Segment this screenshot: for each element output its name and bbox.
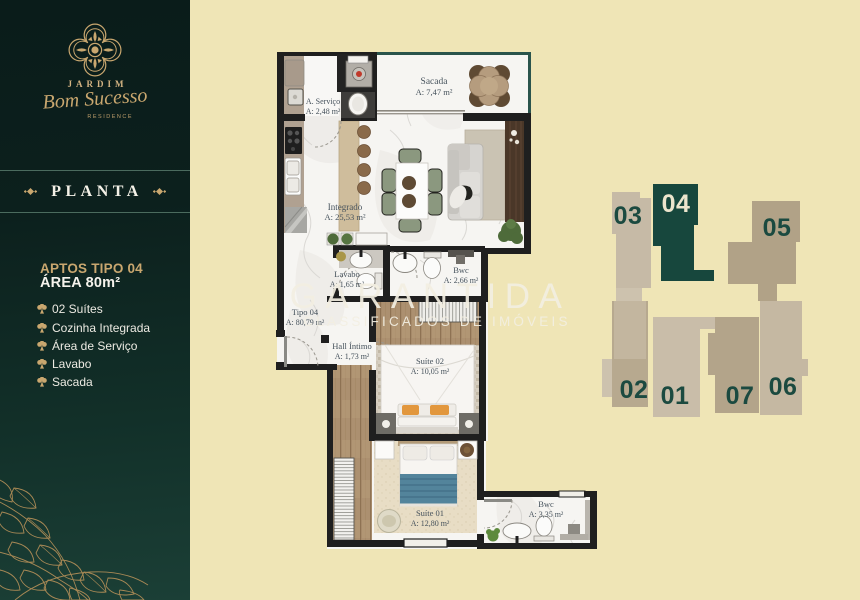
svg-text:Bwc: Bwc — [453, 265, 469, 275]
svg-text:A: 25,53 m²: A: 25,53 m² — [324, 212, 365, 222]
svg-text:A: 2,48 m²: A: 2,48 m² — [306, 107, 341, 116]
svg-text:Bwc: Bwc — [538, 499, 554, 509]
svg-text:06: 06 — [769, 373, 798, 401]
svg-text:Sacada: Sacada — [421, 77, 449, 87]
svg-text:A: 12,80 m²: A: 12,80 m² — [411, 519, 450, 528]
svg-text:A: 10,05 m²: A: 10,05 m² — [411, 367, 450, 376]
svg-text:03: 03 — [614, 202, 643, 230]
svg-text:01: 01 — [661, 382, 690, 410]
svg-text:Suíte 02: Suíte 02 — [416, 356, 444, 366]
svg-text:GARANTIDA: GARANTIDA — [290, 277, 571, 316]
svg-text:A: 1,73 m²: A: 1,73 m² — [335, 352, 370, 361]
svg-text:05: 05 — [763, 214, 792, 242]
svg-text:A. Serviço: A. Serviço — [306, 97, 340, 106]
svg-text:04: 04 — [662, 190, 691, 218]
svg-text:A: 3,35 m²: A: 3,35 m² — [529, 510, 564, 519]
svg-text:02: 02 — [620, 376, 649, 404]
svg-text:07: 07 — [726, 382, 755, 410]
svg-text:CLASSIFICADOS DE IMÓVEIS: CLASSIFICADOS DE IMÓVEIS — [303, 314, 570, 329]
svg-text:Suíte 01: Suíte 01 — [416, 508, 444, 518]
svg-text:A: 7,47 m²: A: 7,47 m² — [416, 87, 453, 97]
svg-text:Integrado: Integrado — [328, 202, 363, 212]
svg-text:Hall Íntimo: Hall Íntimo — [332, 341, 371, 351]
